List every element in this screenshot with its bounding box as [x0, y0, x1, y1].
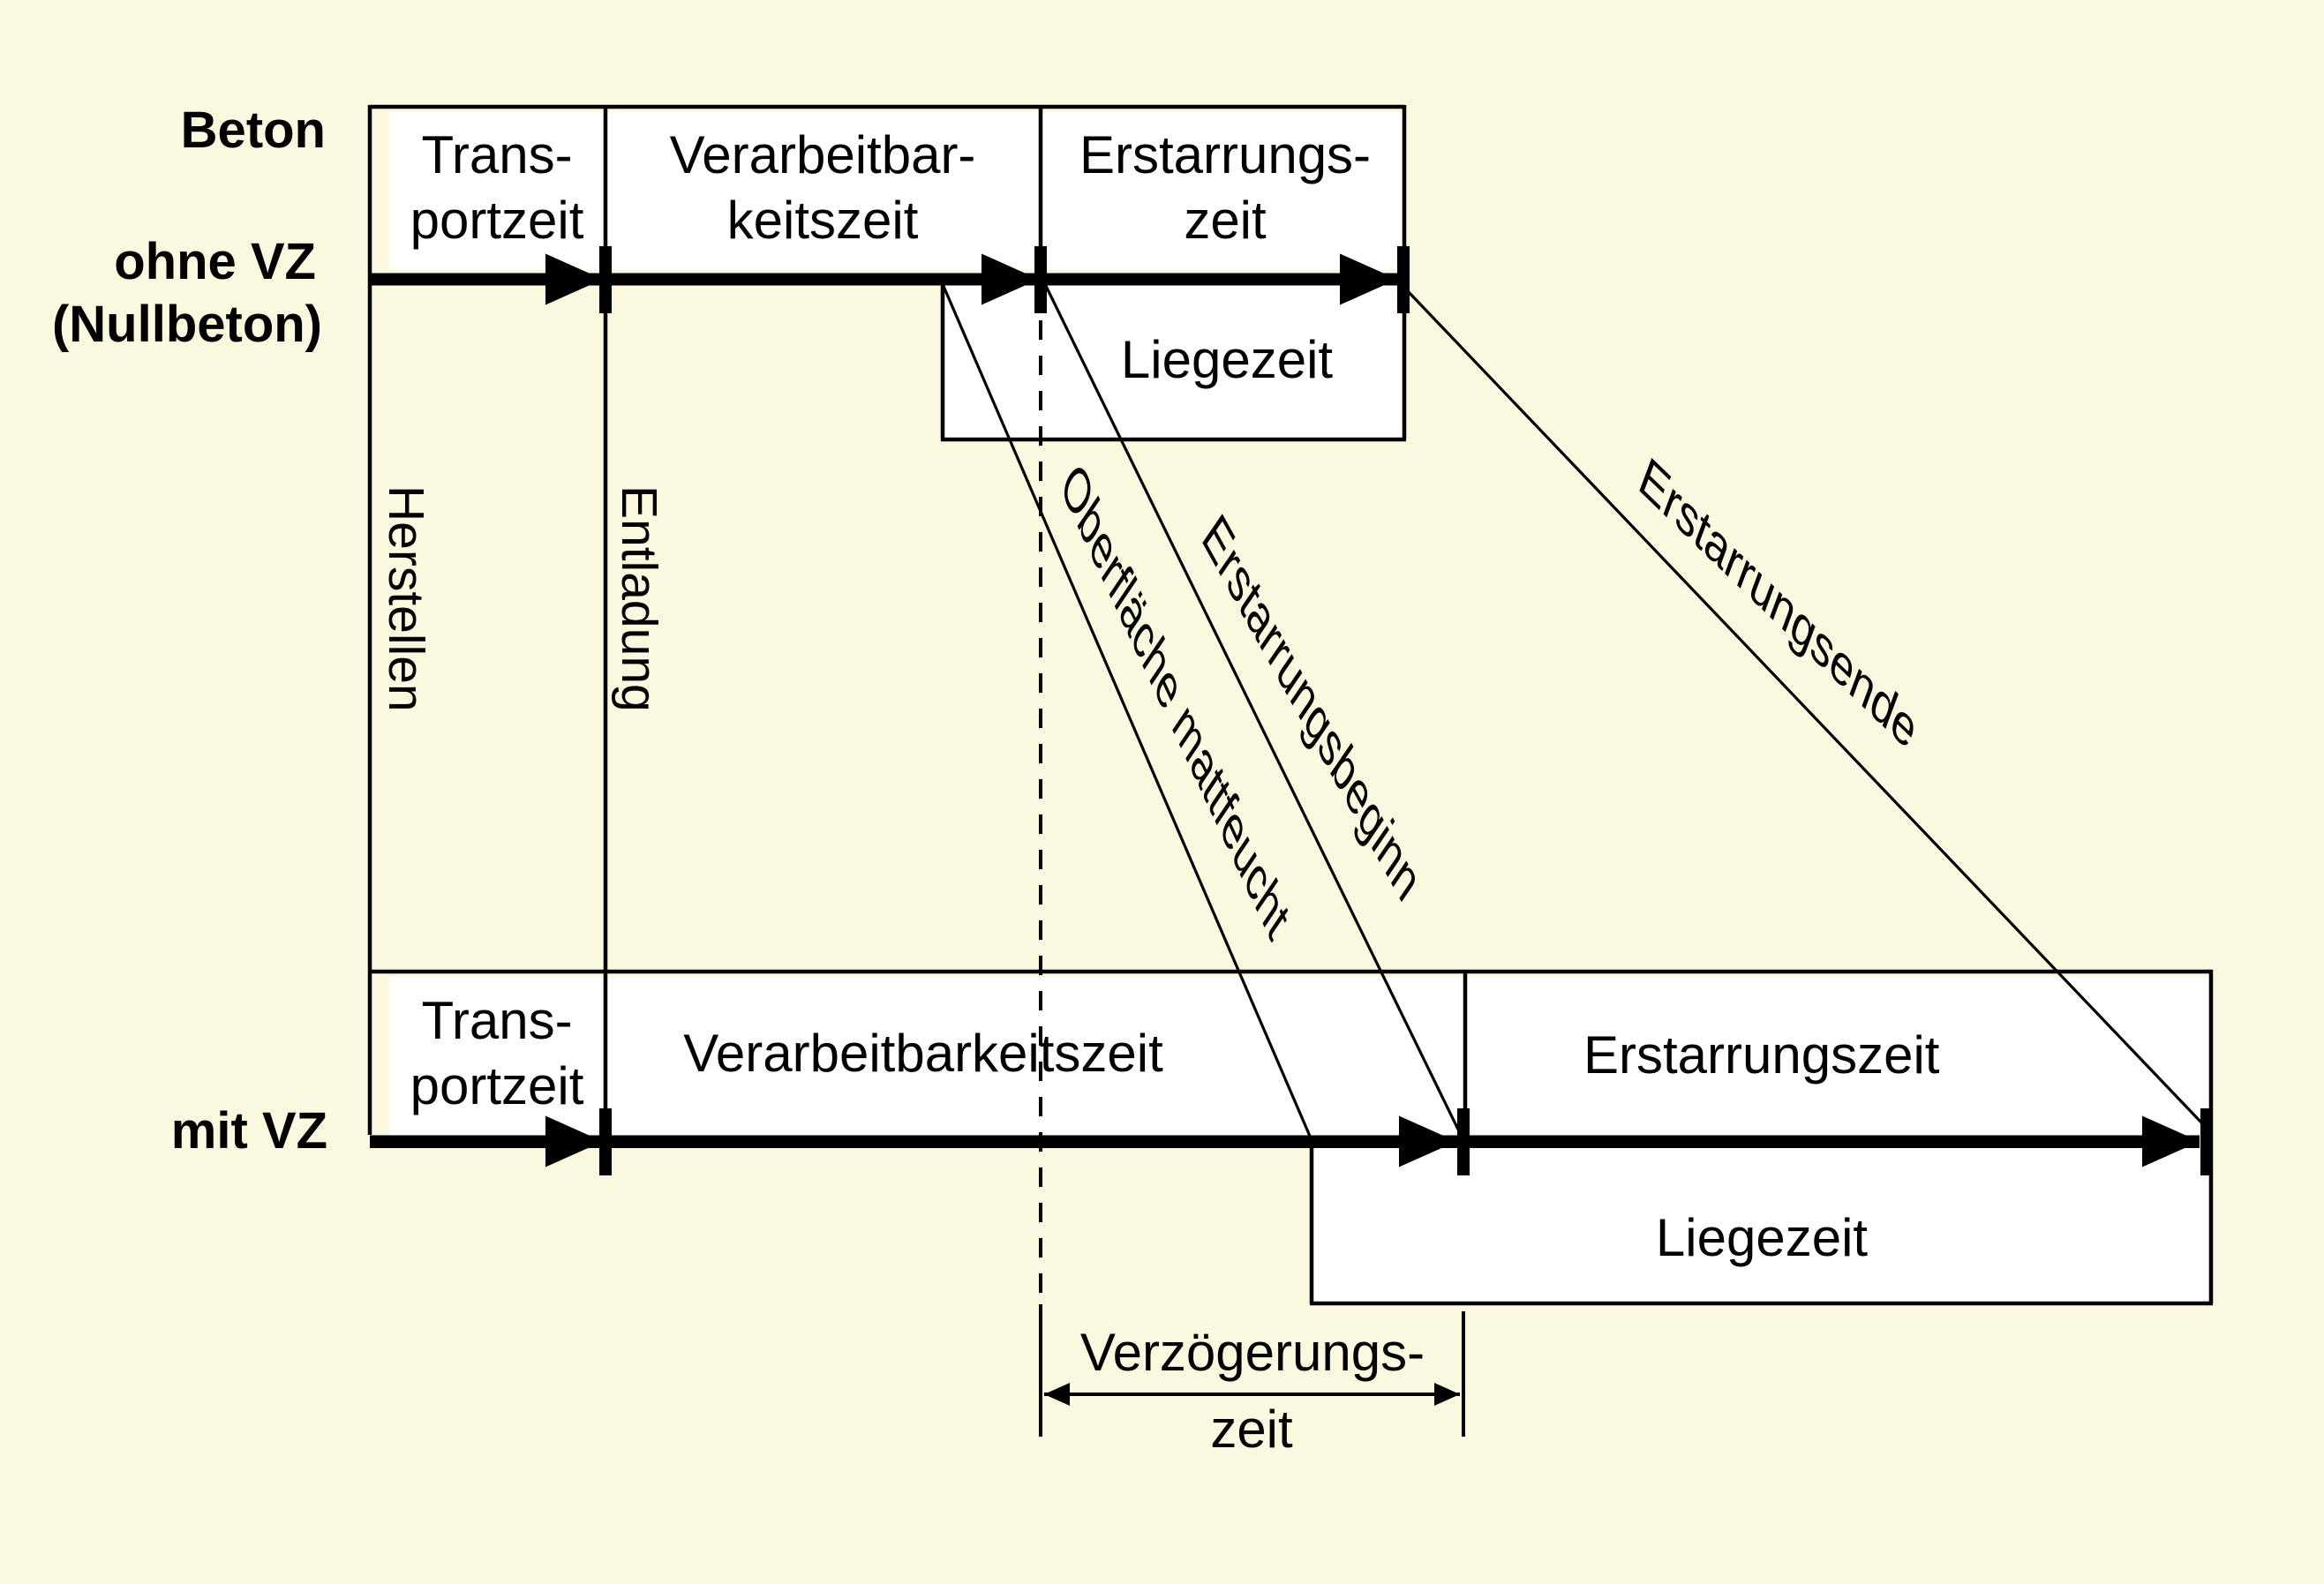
- svg-text:Erstarrungszeit: Erstarrungszeit: [1583, 1025, 1940, 1085]
- svg-text:Herstellen: Herstellen: [378, 485, 434, 712]
- svg-text:keitszeit: keitszeit: [727, 191, 919, 250]
- svg-text:Verarbeitbar-: Verarbeitbar-: [670, 125, 976, 184]
- svg-text:Trans-: Trans-: [421, 991, 572, 1050]
- svg-text:zeit: zeit: [1210, 1400, 1293, 1459]
- svg-text:Entladung: Entladung: [611, 485, 667, 712]
- svg-text:Verzögerungs-: Verzögerungs-: [1080, 1323, 1425, 1382]
- svg-text:Beton: Beton: [181, 101, 326, 159]
- svg-text:portzeit: portzeit: [410, 1056, 584, 1115]
- svg-text:mit VZ: mit VZ: [171, 1102, 327, 1160]
- svg-text:portzeit: portzeit: [410, 191, 584, 250]
- svg-text:Liegezeit: Liegezeit: [1121, 330, 1334, 389]
- svg-text:Erstarrungs-: Erstarrungs-: [1079, 125, 1371, 184]
- svg-text:Trans-: Trans-: [421, 125, 572, 184]
- svg-text:Liegezeit: Liegezeit: [1656, 1208, 1869, 1267]
- svg-text:(Nullbeton): (Nullbeton): [52, 296, 322, 353]
- svg-text:ohne VZ: ohne VZ: [114, 233, 316, 290]
- svg-text:Verarbeitbarkeitszeit: Verarbeitbarkeitszeit: [683, 1024, 1163, 1083]
- svg-text:zeit: zeit: [1184, 191, 1267, 250]
